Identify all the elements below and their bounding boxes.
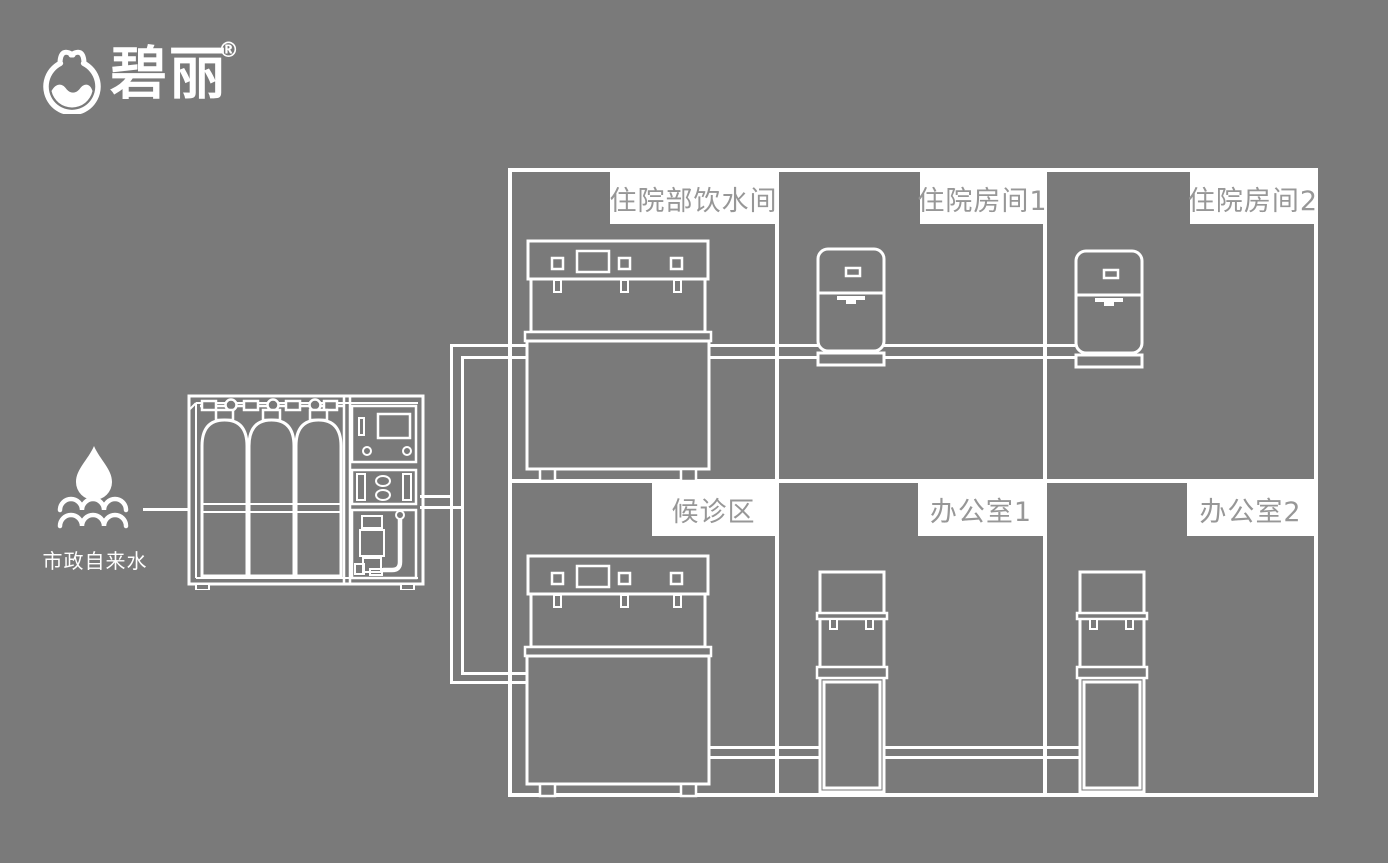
water-drop-waves-icon (46, 444, 142, 540)
brand-logo-icon (38, 42, 106, 114)
floor-dispenser-office-2 (1074, 568, 1150, 796)
floor-dispenser-office-1 (814, 568, 890, 796)
commercial-dispenser-waiting-area (518, 553, 718, 798)
room-label-inpatient-water-room: 住院部饮水间 (610, 172, 777, 224)
room-label-office-2: 办公室2 (1187, 483, 1314, 536)
countertop-dispenser-room-1 (810, 246, 892, 368)
floorplan-diagram: 碧丽 ® 市政自来水 (0, 0, 1388, 863)
municipal-water-label: 市政自来水 (36, 545, 154, 574)
interior-wall-1 (775, 168, 779, 793)
commercial-dispenser-inpatient-water-room (518, 238, 718, 483)
ro-water-treatment-machine (186, 382, 428, 590)
interior-wall-2 (1043, 168, 1047, 793)
room-label-office-1: 办公室1 (918, 483, 1044, 536)
brand-logo-text: 碧丽 (110, 46, 228, 103)
riser-pipe-outer (450, 344, 453, 684)
registered-trademark: ® (218, 40, 239, 61)
supply-pipe-source-to-machine (143, 508, 190, 511)
countertop-dispenser-room-2 (1068, 248, 1150, 370)
room-label-waiting-area: 候诊区 (652, 483, 775, 536)
riser-pipe-inner (461, 356, 464, 675)
room-label-inpatient-room-1: 住院房间1 (920, 172, 1045, 224)
room-label-inpatient-room-2: 住院房间2 (1190, 172, 1316, 224)
